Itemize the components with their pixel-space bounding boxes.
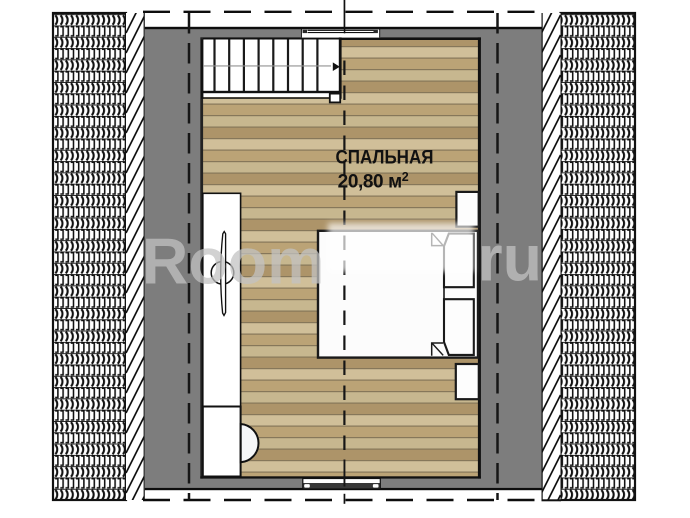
- svg-text:Room: Room: [142, 226, 325, 298]
- svg-text:20,80 м2: 20,80 м2: [338, 170, 409, 193]
- svg-text:СПАЛЬНАЯ: СПАЛЬНАЯ: [336, 148, 434, 169]
- svg-text:ru: ru: [478, 223, 543, 295]
